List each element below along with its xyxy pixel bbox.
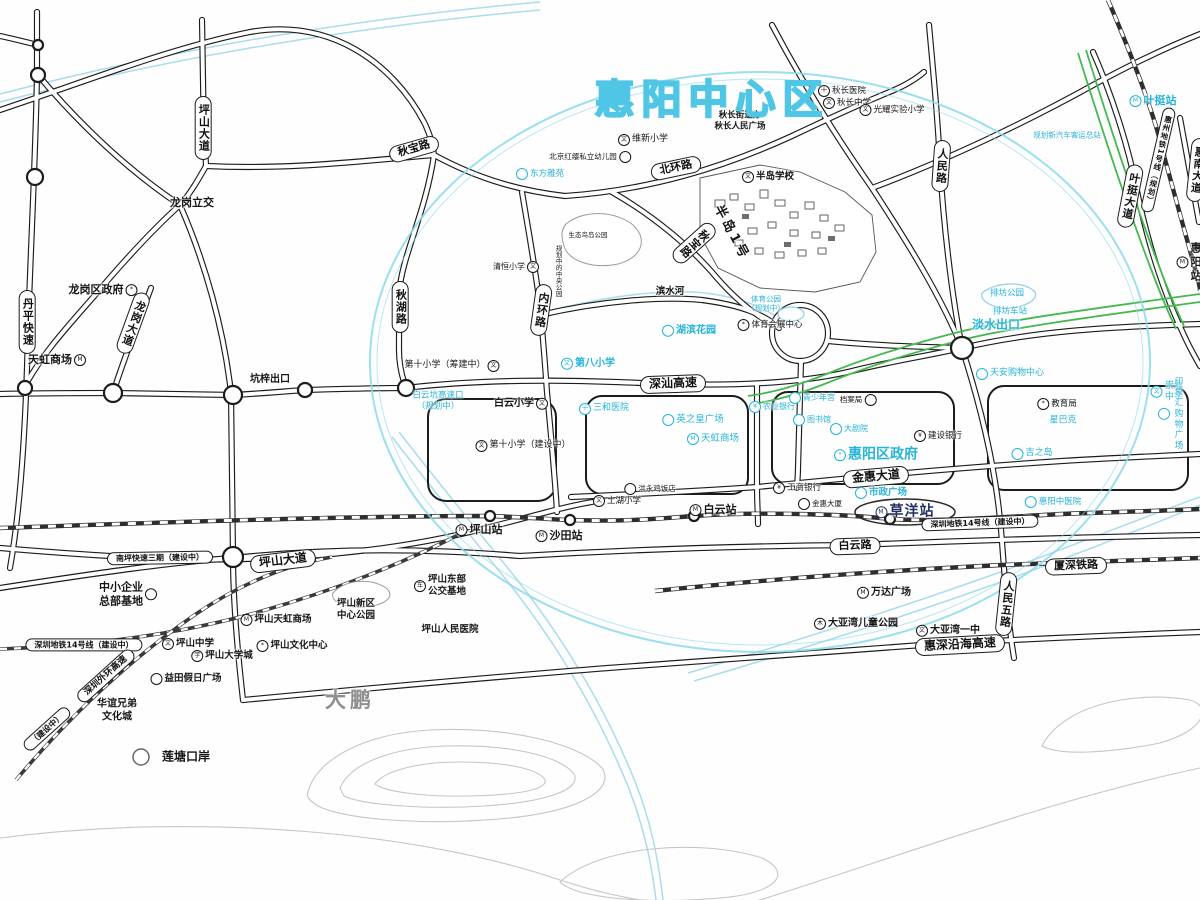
- longgang-interchange: 龙岗立交: [170, 196, 214, 210]
- hongying-kindergarten: 北京红缨私立幼儿园: [549, 151, 631, 163]
- metro-icon: M: [536, 530, 548, 542]
- dot-icon: [662, 414, 674, 426]
- pill-huizhou-metro1: 惠州地铁1号线（规划）: [1140, 106, 1176, 213]
- ps-people-hospital: 坪山人民医院: [421, 624, 478, 636]
- gov-icon: *: [834, 449, 846, 461]
- new-bus-terminal-note: 规划新汽车客运总站: [1033, 130, 1101, 139]
- shizheng-plaza-text: 市政广场: [869, 487, 907, 499]
- pill-outer-ring: 深圳外环高速: [74, 647, 137, 706]
- edu-icon: 学: [191, 650, 203, 662]
- pill-neihuan-lu-text: 内环路: [532, 291, 550, 328]
- dot-icon: [793, 414, 805, 426]
- caoyang-station-text: 草洋站: [890, 503, 935, 521]
- school-icon: 文: [475, 440, 487, 452]
- no10-primary-a: 第十小学（筹建中）文: [404, 360, 499, 372]
- dot-icon: [855, 487, 867, 499]
- dyw-no1-middle-text: 大亚湾一中: [930, 625, 980, 638]
- pill-renmin-lu-text: 人民路: [933, 148, 948, 185]
- hubin-garden: 湖滨花园: [662, 325, 716, 338]
- pill-xiashen-railway-text: 厦深铁路: [1054, 559, 1098, 573]
- starbucks-text: 星巴克: [1049, 415, 1076, 426]
- pill-nanping-exp3: 南坪快速三期（建设中）: [107, 550, 213, 565]
- edu-bureau: *教育局: [1037, 398, 1077, 410]
- jinhui-building-text: 金惠大厦: [812, 499, 842, 508]
- shatian-station: M沙田站: [536, 529, 583, 543]
- school-icon: 文: [742, 171, 754, 183]
- dot-icon: [798, 498, 810, 510]
- dot-icon: [789, 392, 801, 404]
- no10-primary-b-text: 第十小学（建设中）: [489, 440, 570, 451]
- huayi-brothers-text: 华谊兄弟 文化城: [97, 699, 137, 724]
- bird-island-note: 生态鸟岛公园: [569, 231, 608, 239]
- pill-beihuan-lu-text: 北环路: [659, 158, 694, 177]
- gov-icon: *: [126, 284, 138, 296]
- baiyun-station: M白云站: [690, 503, 737, 517]
- pill-outer-ring-text: 深圳外环高速: [82, 654, 129, 698]
- pill-baiyun-lu-text: 白云路: [838, 539, 871, 553]
- pingshan-station-text: 坪山站: [470, 523, 503, 537]
- tianan-shopping-text: 天安购物中心: [990, 368, 1044, 379]
- paifang-stop-text: 排坊车站: [993, 307, 1027, 318]
- tianan-shopping: 天安购物中心: [976, 368, 1044, 380]
- dot-icon: [1025, 496, 1037, 508]
- tianhong-mall-center: M天虹商场: [687, 433, 739, 445]
- longgang-gov: 龙岗区政府*: [69, 283, 138, 297]
- guangyao-primary: 文光耀实验小学: [859, 104, 924, 116]
- dyw-children-park: 木大亚湾儿童公园: [814, 618, 898, 631]
- pill-shenshan-gaosu: 深汕高速: [640, 374, 707, 394]
- pill-longgang-dadao-text: 龙岗大道: [119, 298, 147, 347]
- dot-icon: [150, 673, 162, 685]
- starbucks: 星巴克: [1049, 415, 1076, 426]
- pill-yeting-dadao: 叶挺大道: [1116, 163, 1145, 229]
- school-icon: 文: [618, 134, 630, 146]
- longgang-interchange-text: 龙岗立交: [170, 196, 214, 210]
- huiyang-tcm-hospital-text: 惠阳中医院: [1039, 497, 1082, 508]
- dot-icon: [619, 151, 631, 163]
- map-title: 惠阳中心区: [595, 67, 830, 125]
- bus-icon: 车: [414, 580, 426, 592]
- caoyang-station: M草洋站: [876, 503, 935, 521]
- dongfang-yayuan-text: 东方雅苑: [530, 169, 564, 180]
- wanda-plaza-text: 万达广场: [871, 587, 911, 600]
- pill-yeting-dadao-text: 叶挺大道: [1119, 171, 1141, 221]
- yeting-station-text: 叶挺站: [1144, 94, 1177, 108]
- paifang-park-text: 排坊公园: [990, 289, 1024, 300]
- park-icon: 木: [814, 618, 826, 630]
- pingshan-station: M坪山站: [456, 523, 503, 537]
- paifang-park: 排坊公园: [990, 289, 1024, 300]
- metro-icon: M: [1177, 256, 1189, 268]
- dajuyuan: 大剧院: [830, 423, 868, 435]
- binshui-river-text: 滨水河: [656, 286, 685, 298]
- bandao-school-text: 半岛学校: [756, 171, 794, 183]
- central-park-note: 规划中的中央公园: [554, 245, 562, 297]
- metro-icon: M: [690, 504, 702, 516]
- huiyang-gov: *惠阳区政府: [834, 446, 918, 464]
- pill-qiuhu-lu: 秋湖路: [392, 281, 409, 333]
- pill-beihuan-lu: 北环路: [649, 155, 702, 182]
- baiyun-primary: 白云小学文: [494, 398, 548, 411]
- sme-hq-base-text: 中小企业 总部基地: [99, 580, 143, 608]
- pill-jinhui-dadao: 金惠大道: [842, 465, 909, 488]
- ps-center-park: 坪山新区 中心公园: [337, 598, 375, 622]
- no8-primary-text: 第八小学: [575, 358, 615, 371]
- shizheng-plaza: 市政广场: [855, 487, 907, 499]
- tuhu-primary-text: 土湖小学: [607, 496, 641, 507]
- ps-people-hospital-text: 坪山人民医院: [421, 624, 478, 636]
- bank-icon: ¥: [749, 401, 761, 413]
- dot-icon: [516, 168, 528, 180]
- pill-qiubao-lu: 秋宝路: [387, 134, 441, 164]
- hongying-kindergarten-text: 北京红缨私立幼儿园: [549, 152, 617, 161]
- pill-huizhou-metro1-text: 惠州地铁1号线（规划）: [1144, 115, 1173, 206]
- binshui-river: 滨水河: [656, 286, 685, 298]
- dyw-no1-middle: 文大亚湾一中: [916, 625, 980, 638]
- weixin-primary: 文维新小学: [618, 134, 668, 146]
- pill-pingshan-dadao-s: 坪山大道: [249, 548, 317, 574]
- ps-east-bus-base: 车坪山东部 公交基地: [414, 574, 466, 598]
- school-icon: 文: [162, 638, 174, 650]
- bandao-school: 文半岛学校: [742, 171, 794, 183]
- pill-jinhui-dadao-text: 金惠大道: [851, 468, 900, 486]
- qingshaonian-gong: 青少年宫: [789, 392, 835, 404]
- baiyunkeng-exit: 白云坑高速口 （规划中）: [412, 390, 463, 411]
- pill-longgang-dadao: 龙岗大道: [114, 290, 152, 356]
- sme-hq-base: 中小企业 总部基地: [99, 580, 157, 608]
- sanhe-hospital-text: 三和医院: [593, 403, 629, 414]
- hongyong-restaurant-text: 洪永鸡饭店: [638, 484, 676, 493]
- wanda-plaza: M万达广场: [857, 587, 911, 600]
- pill-pingshan-dadao-s-text: 坪山大道: [258, 551, 307, 571]
- yingzhihuang-plaza: 英之皇广场: [662, 414, 724, 426]
- dapeng-region-text: 大鹏: [325, 687, 375, 713]
- ps-east-bus-base-text: 坪山东部 公交基地: [428, 574, 466, 598]
- school-icon: 文: [593, 495, 605, 507]
- pill-renmin-5-lu: 人民五路: [994, 571, 1017, 636]
- pill-qiuhu-lu-text: 秋湖路: [394, 289, 407, 325]
- gov-icon: *: [1037, 398, 1049, 410]
- tuhu-primary: 文土湖小学: [593, 495, 641, 507]
- qingheng-primary: 清恒小学文: [493, 261, 539, 273]
- paifang-stop: 排坊车站: [993, 307, 1027, 318]
- metro-icon: M: [1130, 95, 1142, 107]
- qiuchang-hospital-text: 秋长医院: [832, 86, 866, 97]
- longgang-gov-text: 龙岗区政府: [69, 283, 124, 297]
- labels-layer: 坪山大道秋宝路秋湖路内环路北环路秋宝路人民路叶挺大道惠州地铁1号线（规划）惠南大…: [0, 0, 1200, 900]
- huiyang-tcm-hospital: 惠阳中医院: [1025, 496, 1082, 508]
- dongfang-yayuan: 东方雅苑: [516, 168, 564, 180]
- dot-icon: [864, 394, 876, 406]
- pill-huinan-dadao: 惠南大道: [1185, 137, 1200, 202]
- liantang-port-text: 莲塘口岸: [162, 750, 210, 765]
- dajuyuan-text: 大剧院: [844, 424, 868, 434]
- dot-icon: [830, 423, 842, 435]
- pill-neihuan-lu: 内环路: [529, 283, 553, 337]
- huiyang-station: M惠阳站: [1177, 241, 1200, 282]
- ps-culture-center-text: 坪山文化中心: [270, 640, 327, 652]
- dot-icon: [1158, 408, 1170, 420]
- sports-expo-center-text: 体育会展中心: [751, 320, 802, 331]
- dot-icon: [976, 368, 988, 380]
- pill-qiubao-lu-text: 秋宝路: [396, 138, 431, 159]
- pill-huinan-dadao-text: 惠南大道: [1188, 145, 1200, 194]
- school-icon: 文: [859, 104, 871, 116]
- gongshang-bank: ¥工商银行: [773, 482, 821, 494]
- jianshe-bank: ¥建设银行: [914, 430, 962, 442]
- sports-park-plan: 体育公园 （规划中）: [747, 295, 785, 314]
- no8-primary: 文第八小学: [561, 358, 615, 371]
- kengzi-exit: 坑梓出口: [250, 374, 290, 387]
- sanhe-hospital: 十三和医院: [579, 403, 629, 415]
- gov-icon: *: [256, 640, 268, 652]
- rail-icon: M: [456, 524, 468, 536]
- pill-xiashen-railway: 厦深铁路: [1045, 557, 1108, 576]
- huayi-brothers: 华谊兄弟 文化城: [97, 699, 137, 724]
- huiyang-station-text: 惠阳站: [1191, 241, 1200, 282]
- dot-icon: [145, 588, 157, 600]
- pill-sz-metro14-w-text: 深圳地铁14号线（建设中）: [34, 640, 133, 649]
- jizhidao-text: 吉之岛: [1025, 448, 1052, 459]
- ps-middle-school: 文坪山中学: [162, 638, 214, 650]
- dot-icon: [662, 325, 674, 337]
- shop-icon: M: [240, 614, 252, 626]
- bandao-no1-text: 半岛1号: [710, 203, 753, 264]
- yeting-station: M叶挺站: [1130, 94, 1177, 108]
- ps-tianhong-mall: M坪山天虹商场: [240, 614, 311, 626]
- danganju-text: 档案局: [840, 395, 863, 404]
- metro-icon: M: [876, 506, 888, 518]
- school-icon: 文: [488, 360, 500, 372]
- pill-outer-ring-status: （建设中）: [21, 705, 73, 754]
- ps-university-town-text: 坪山大学城: [205, 650, 253, 662]
- ps-culture-center: *坪山文化中心: [256, 640, 327, 652]
- school-icon: 文: [527, 261, 539, 273]
- hongyong-restaurant: 洪永鸡饭店: [624, 483, 676, 495]
- danganju: 档案局: [840, 394, 877, 406]
- shatian-station-text: 沙田站: [550, 529, 583, 543]
- new-bus-terminal-note-text: 规划新汽车客运总站: [1033, 130, 1101, 139]
- huiyang-gov-text: 惠阳区政府: [848, 446, 918, 464]
- shop-icon: M: [857, 587, 869, 599]
- pill-baiyun-lu: 白云路: [829, 537, 881, 555]
- pill-qiubao-lu-2: 秋宝路: [669, 219, 719, 266]
- dot-icon: [1011, 448, 1023, 460]
- bird-island-note-text: 生态鸟岛公园: [569, 231, 608, 239]
- pill-sz-metro14-e: 深圳地铁14号线（建设中）: [921, 514, 1039, 531]
- tianhong-mall-center-text: 天虹商场: [701, 433, 739, 445]
- shop-icon: M: [74, 354, 86, 366]
- tianhong-mall-west-text: 天虹商场: [28, 353, 72, 367]
- tianhong-mall-west: 天虹商场M: [28, 353, 86, 367]
- gov-icon: *: [737, 319, 749, 331]
- tushuguan: 图书馆: [793, 414, 831, 426]
- ps-university-town: 学坪山大学城: [191, 650, 253, 662]
- pill-shenshan-gaosu-text: 深汕高速: [649, 376, 697, 391]
- pill-nanping-exp3-text: 南坪快速三期（建设中）: [116, 553, 204, 564]
- pill-huishen-coastal-text: 惠深沿海高速: [924, 636, 997, 654]
- pill-sz-metro14-e-text: 深圳地铁14号线（建设中）: [930, 517, 1029, 530]
- yitian-holiday-plaza: 益田假日广场: [150, 673, 221, 685]
- dot-icon: [624, 483, 636, 495]
- no10-primary-b: 文第十小学（建设中）: [475, 440, 570, 452]
- jinhui-building: 金惠大厦: [798, 498, 842, 510]
- danshui-exit: 淡水出口: [972, 318, 1020, 333]
- pill-renmin-lu: 人民路: [931, 139, 951, 192]
- sports-expo-center: *体育会展中心: [737, 319, 802, 331]
- pill-qiubao-lu-2-text: 秋宝路: [676, 226, 711, 259]
- dyw-children-park-text: 大亚湾儿童公园: [828, 618, 898, 631]
- no10-primary-a-text: 第十小学（筹建中）: [404, 360, 485, 371]
- school-icon: 文: [916, 625, 928, 637]
- baiyun-station-text: 白云站: [704, 503, 737, 517]
- qingshaonian-gong-text: 青少年宫: [803, 393, 835, 403]
- bank-icon: ¥: [773, 482, 785, 494]
- liantang-port: 莲塘口岸: [162, 750, 210, 765]
- hospital-icon: 十: [579, 403, 591, 415]
- guangyao-primary-text: 光耀实验小学: [873, 105, 924, 116]
- yinxianghui-plaza-text: 印象汇购物广场: [1172, 377, 1186, 451]
- dapeng-region: 大鹏: [325, 687, 375, 713]
- yinxianghui-plaza: 印象汇购物广场: [1158, 377, 1186, 451]
- pill-pingshan-dadao-n-text: 坪山大道: [197, 104, 210, 152]
- pill-pingshan-dadao-n: 坪山大道: [195, 96, 212, 160]
- baiyunkeng-exit-text: 白云坑高速口 （规划中）: [412, 390, 463, 411]
- ps-center-park-text: 坪山新区 中心公园: [337, 598, 375, 622]
- ps-middle-school-text: 坪山中学: [176, 638, 214, 650]
- yingzhihuang-plaza-text: 英之皇广场: [676, 414, 724, 426]
- kengzi-exit-text: 坑梓出口: [250, 374, 290, 387]
- shop-icon: M: [687, 433, 699, 445]
- pill-outer-ring-status-text: （建设中）: [29, 712, 65, 746]
- yitian-holiday-plaza-text: 益田假日广场: [164, 673, 221, 685]
- tushuguan-text: 图书馆: [807, 415, 831, 425]
- sports-park-plan-text: 体育公园 （规划中）: [747, 295, 785, 314]
- school-icon: 文: [561, 358, 573, 370]
- ps-tianhong-mall-text: 坪山天虹商场: [254, 614, 311, 626]
- edu-bureau-text: 教育局: [1051, 399, 1077, 410]
- weixin-primary-text: 维新小学: [632, 134, 668, 145]
- hubin-garden-text: 湖滨花园: [676, 325, 716, 338]
- bandao-no1: 半岛1号: [710, 203, 753, 264]
- pill-danping-express-text: 丹平快速: [21, 298, 34, 346]
- map-canvas[interactable]: 坪山大道秋宝路秋湖路内环路北环路秋宝路人民路叶挺大道惠州地铁1号线（规划）惠南大…: [0, 0, 1200, 900]
- pill-renmin-5-lu-text: 人民五路: [997, 579, 1015, 628]
- qingheng-primary-text: 清恒小学: [493, 262, 525, 272]
- bank-icon: ¥: [914, 430, 926, 442]
- pill-danping-express: 丹平快速: [19, 290, 36, 354]
- danshui-exit-text: 淡水出口: [972, 318, 1020, 333]
- jizhidao: 吉之岛: [1011, 448, 1052, 460]
- central-park-note-text: 规划中的中央公园: [554, 245, 562, 297]
- gongshang-bank-text: 工商银行: [787, 483, 821, 494]
- school-icon: 文: [536, 398, 548, 410]
- jianshe-bank-text: 建设银行: [928, 431, 962, 442]
- baiyun-primary-text: 白云小学: [494, 398, 534, 411]
